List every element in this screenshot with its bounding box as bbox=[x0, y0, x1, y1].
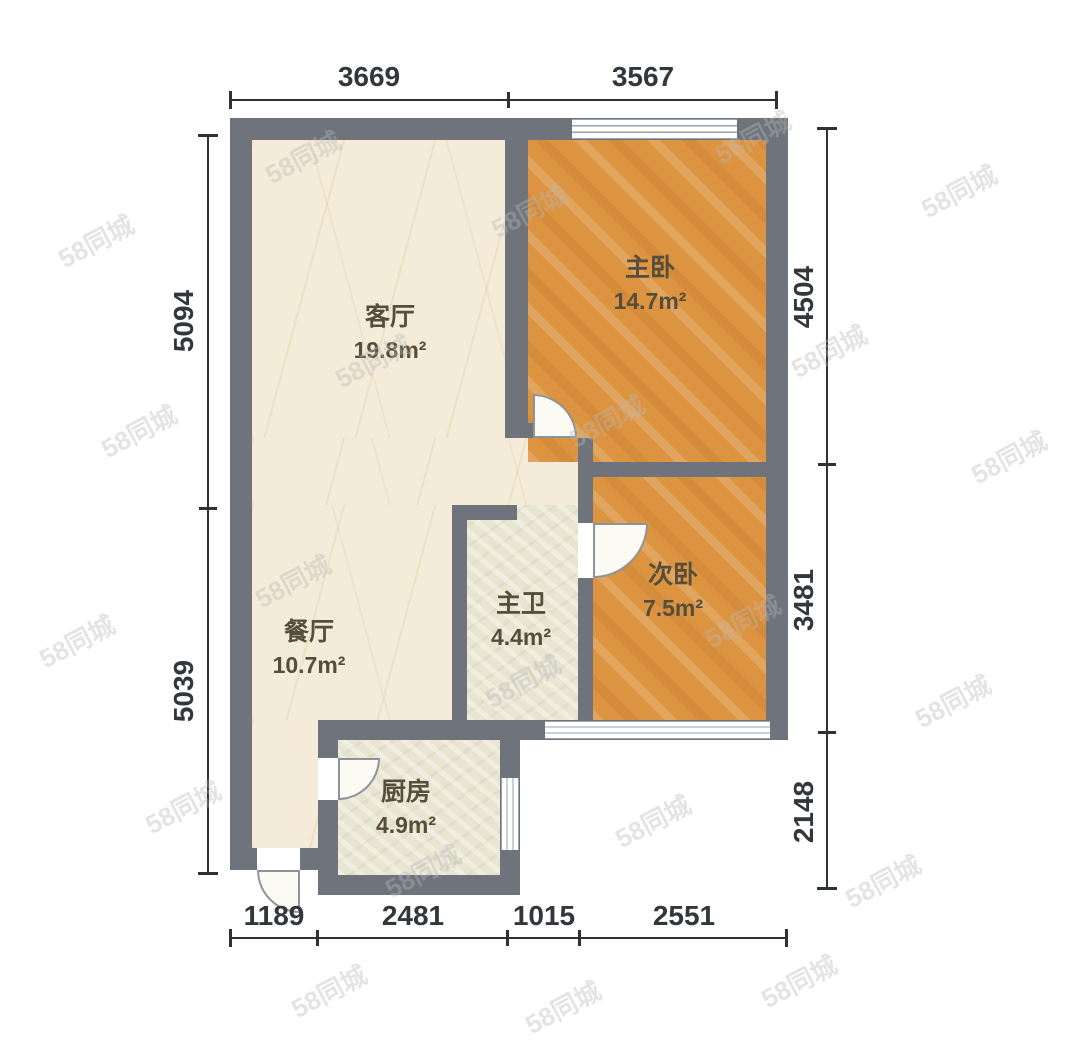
room-area: 14.7m² bbox=[565, 285, 735, 318]
dimension-tick bbox=[817, 887, 837, 890]
watermark: 58同城 bbox=[32, 605, 121, 676]
watermark: 58同城 bbox=[284, 955, 373, 1026]
room-name: 主卫 bbox=[436, 587, 606, 621]
watermark: 58同城 bbox=[838, 845, 927, 916]
dimension-tick bbox=[198, 872, 218, 875]
window-kitchen-right bbox=[501, 778, 519, 850]
wall-master-bottom-seg bbox=[505, 423, 533, 438]
dimension-tick bbox=[818, 463, 836, 466]
living-room-floor bbox=[252, 140, 505, 438]
dining-room-floor bbox=[252, 505, 452, 720]
watermark: 58同城 bbox=[518, 971, 607, 1042]
dimension-label-top-1: 3669 bbox=[304, 62, 434, 92]
dimension-tick bbox=[817, 127, 837, 130]
dimension-label-top-2: 3567 bbox=[578, 62, 708, 92]
watermark: 58同城 bbox=[608, 785, 697, 856]
dimension-line-right bbox=[826, 128, 828, 890]
dimension-label-bottom-4: 2551 bbox=[619, 901, 749, 931]
dimension-tick bbox=[785, 929, 788, 947]
dimension-label-bottom-3: 1015 bbox=[479, 901, 609, 931]
room-label-dining: 餐厅 10.7m² bbox=[224, 615, 394, 682]
room-label-kitchen: 厨房 4.9m² bbox=[321, 775, 491, 842]
dimension-tick bbox=[507, 92, 510, 108]
watermark: 58同城 bbox=[94, 395, 183, 466]
dimension-tick bbox=[199, 507, 217, 510]
wall-master-second bbox=[593, 462, 788, 477]
dimension-tick bbox=[506, 930, 509, 946]
dimension-label-right-3: 2148 bbox=[789, 747, 819, 877]
room-area: 4.9m² bbox=[321, 809, 491, 842]
dimension-tick bbox=[198, 134, 218, 137]
dimension-tick bbox=[818, 731, 836, 734]
dimension-line-top bbox=[230, 99, 778, 101]
room-area: 10.7m² bbox=[224, 649, 394, 682]
wall-right bbox=[766, 118, 788, 740]
room-area: 4.4m² bbox=[436, 621, 606, 654]
window-secondbed-bottom bbox=[545, 721, 770, 739]
dimension-label-bottom-2: 2481 bbox=[348, 901, 478, 931]
watermark: 58同城 bbox=[908, 665, 997, 736]
dimension-tick bbox=[229, 91, 232, 109]
room-name: 次卧 bbox=[588, 558, 758, 592]
room-name: 餐厅 bbox=[224, 615, 394, 649]
watermark: 58同城 bbox=[754, 945, 843, 1016]
room-name: 主卧 bbox=[565, 251, 735, 285]
wall-bath-top bbox=[452, 505, 517, 520]
dimension-label-left-1: 5094 bbox=[169, 256, 199, 386]
dimension-label-left-2: 5039 bbox=[169, 626, 199, 756]
room-label-master-bath: 主卫 4.4m² bbox=[436, 587, 606, 654]
room-name: 厨房 bbox=[321, 775, 491, 809]
watermark: 58同城 bbox=[914, 155, 1003, 226]
wall-living-master bbox=[505, 118, 528, 438]
watermark: 58同城 bbox=[964, 421, 1053, 492]
room-label-master-bedroom: 主卧 14.7m² bbox=[565, 251, 735, 318]
watermark: 58同城 bbox=[51, 205, 140, 276]
floor-plan: 客厅 19.8m² 主卧 14.7m² 次卧 7.5m² 餐厅 10.7m² 主… bbox=[0, 0, 1073, 1045]
dimension-label-bottom-1: 1189 bbox=[209, 901, 339, 931]
entry-door-opening bbox=[257, 848, 300, 870]
watermark: 58同城 bbox=[138, 771, 227, 842]
dimension-label-right-2: 3481 bbox=[789, 535, 819, 665]
dimension-line-bottom bbox=[230, 937, 788, 939]
dimension-tick bbox=[316, 930, 319, 946]
dining-strip-floor bbox=[252, 720, 318, 848]
dimension-line-left bbox=[207, 135, 209, 875]
dimension-tick bbox=[229, 929, 232, 947]
dimension-tick bbox=[578, 930, 581, 946]
wall-left bbox=[230, 118, 252, 870]
